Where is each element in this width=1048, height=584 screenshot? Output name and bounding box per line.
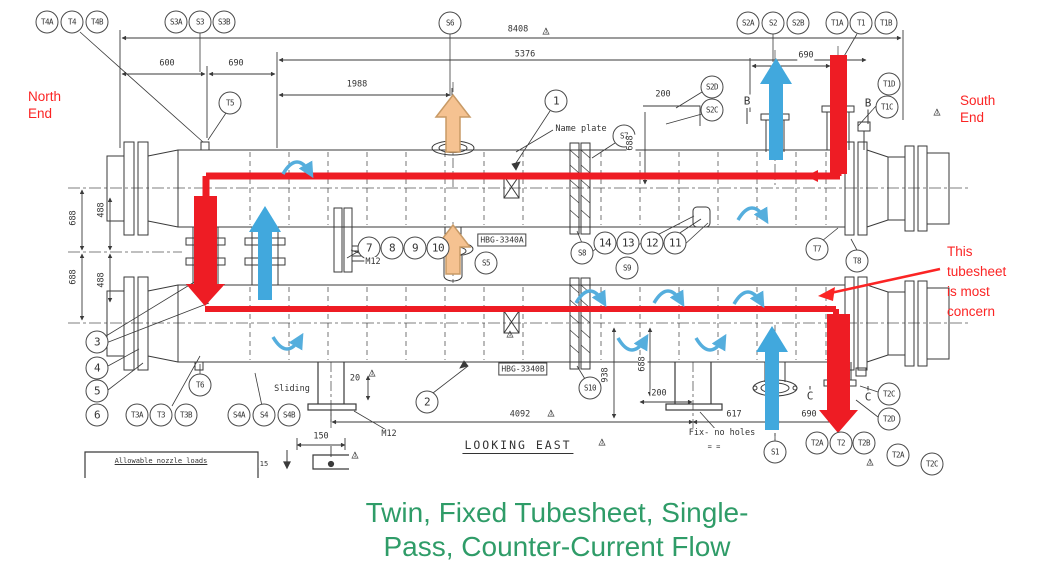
section-mark-C-1: C (806, 390, 815, 403)
dim-20: 20 (349, 375, 361, 384)
dim-938: 938 (602, 366, 611, 383)
m12-lower-label: M12 (380, 429, 397, 439)
callout-T3: T3 (150, 404, 173, 427)
m12-upper-label: M12 (364, 257, 381, 267)
flag-number: 1 (544, 28, 547, 34)
callout-T5: T5 (219, 92, 242, 115)
dim-4092: 4092 (509, 411, 531, 420)
sliding-support-label: Sliding (273, 384, 311, 394)
callout-T2C-2: T2C (921, 453, 944, 476)
callout-T2A: T2A (806, 432, 829, 455)
flag-support: △ 1 (365, 366, 379, 379)
flag-number: 1 (353, 452, 356, 458)
view-label: LOOKING EAST (462, 438, 573, 454)
caption: Twin, Fixed Tubesheet, Single- Pass, Cou… (57, 496, 1048, 564)
callout-T4B: T4B (86, 11, 109, 34)
callout-T7: T7 (806, 238, 829, 261)
dim-1988: 1988 (346, 81, 368, 90)
callout-T6: T6 (189, 374, 212, 397)
callout-T4: T4 (61, 11, 84, 34)
equipment-tag-lower: HBG-3340B (498, 363, 547, 376)
dim-688-upperleft: 688 (70, 209, 79, 226)
dim-688-topright: 688 (627, 134, 636, 151)
callout-11: 11 (664, 232, 687, 255)
callout-T4A: T4A (36, 11, 59, 34)
flag-number: 1 (549, 410, 552, 416)
flag-southend: △ 1 (930, 105, 944, 118)
section-mark-B-2: B (864, 97, 873, 110)
callout-T2D: T2D (878, 408, 901, 431)
callout-10: 10 (427, 237, 450, 260)
dim-688-bottomright: 688 (639, 355, 648, 372)
flag-number: 1 (868, 459, 871, 465)
allowable-loads-label: Allowable nozzle loads (114, 457, 209, 465)
callout-T2A-2: T2A (887, 444, 910, 467)
dim-488-lowerleft: 488 (98, 271, 107, 288)
dim-200-bottomright: 200 (650, 390, 667, 399)
section-mark-C-2: C (864, 391, 873, 404)
south-end-label: South End (960, 92, 995, 126)
callout-S9: S9 (616, 257, 639, 280)
callout-6: 6 (86, 404, 109, 427)
flag-number: 1 (600, 439, 603, 445)
callout-S2D: S2D (701, 76, 724, 99)
callout-T2: T2 (830, 432, 853, 455)
callout-S5: S5 (475, 252, 498, 275)
callout-S10: S10 (579, 377, 602, 400)
callout-4: 4 (86, 357, 109, 380)
callout-12: 12 (641, 232, 664, 255)
flag-4092: △ 1 (544, 406, 558, 419)
anchor-marks: = = (707, 443, 722, 451)
callout-T3B: T3B (175, 404, 198, 427)
dim-600: 600 (158, 60, 175, 69)
dim-5376: 5376 (514, 51, 536, 60)
flag-number: 1 (935, 109, 938, 115)
concern-annotation: This tubesheet is most concern (947, 242, 1006, 322)
callout-S2B: S2B (787, 12, 810, 35)
callout-13: 13 (617, 232, 640, 255)
callout-T8: T8 (846, 250, 869, 273)
stub-text: 15 (259, 460, 269, 468)
flag-t2: △ 1 (863, 455, 877, 468)
callout-T1D: T1D (878, 73, 901, 96)
flag-number: 1 (370, 370, 373, 376)
callout-T1B: T1B (875, 12, 898, 35)
flag-lookingeast: △ 1 (595, 435, 609, 448)
dim-150: 150 (312, 433, 329, 442)
dim-690-bottom: 690 (800, 411, 817, 420)
callout-S2A: S2A (737, 12, 760, 35)
callout-1: 1 (545, 90, 568, 113)
flag-base-detail: △ 1 (348, 448, 362, 461)
callout-S4A: S4A (228, 404, 251, 427)
callout-S3: S3 (189, 11, 212, 34)
flag-number: 1 (508, 331, 511, 337)
callout-14: 14 (594, 232, 617, 255)
dim-690-left: 690 (227, 60, 244, 69)
dim-200-topright: 200 (654, 91, 671, 100)
callout-S2C: S2C (701, 99, 724, 122)
callout-S2: S2 (762, 12, 785, 35)
callout-S4B: S4B (278, 404, 301, 427)
callout-5: 5 (86, 380, 109, 403)
name-plate-label: Name plate (554, 124, 607, 134)
dim-688-lowerleft: 688 (70, 268, 79, 285)
fixed-support-label: Fix- no holes (688, 428, 757, 438)
flag-8408: △ 1 (539, 24, 553, 37)
callout-9: 9 (404, 237, 427, 260)
section-mark-B-1: B (743, 95, 752, 108)
callout-T1: T1 (850, 12, 873, 35)
north-end-label: North End (28, 88, 61, 122)
callout-2: 2 (416, 391, 439, 414)
dim-488-upperleft: 488 (98, 201, 107, 218)
callout-S4: S4 (253, 404, 276, 427)
dim-617: 617 (725, 411, 742, 420)
callout-S3B: S3B (213, 11, 236, 34)
callout-3: 3 (86, 331, 109, 354)
callout-S6: S6 (439, 12, 462, 35)
callout-8: 8 (381, 237, 404, 260)
dim-8408: 8408 (507, 26, 529, 35)
heat-exchanger-drawing-slide: T4AT4T4BS3AS3S3BS6S2AS2S2BT1AT1T1BS2DS2C… (0, 0, 1048, 584)
callout-T1C: T1C (876, 96, 899, 119)
callout-S8: S8 (571, 242, 594, 265)
callout-T2B: T2B (853, 432, 876, 455)
callout-T3A: T3A (126, 404, 149, 427)
equipment-tag-upper: HBG-3340A (477, 234, 526, 247)
dim-690-right: 690 (797, 52, 814, 61)
flag-shell: △ 1 (503, 327, 517, 340)
callout-S1: S1 (764, 441, 787, 464)
callout-T1A: T1A (826, 12, 849, 35)
callout-T2C: T2C (878, 383, 901, 406)
callout-S3A: S3A (165, 11, 188, 34)
